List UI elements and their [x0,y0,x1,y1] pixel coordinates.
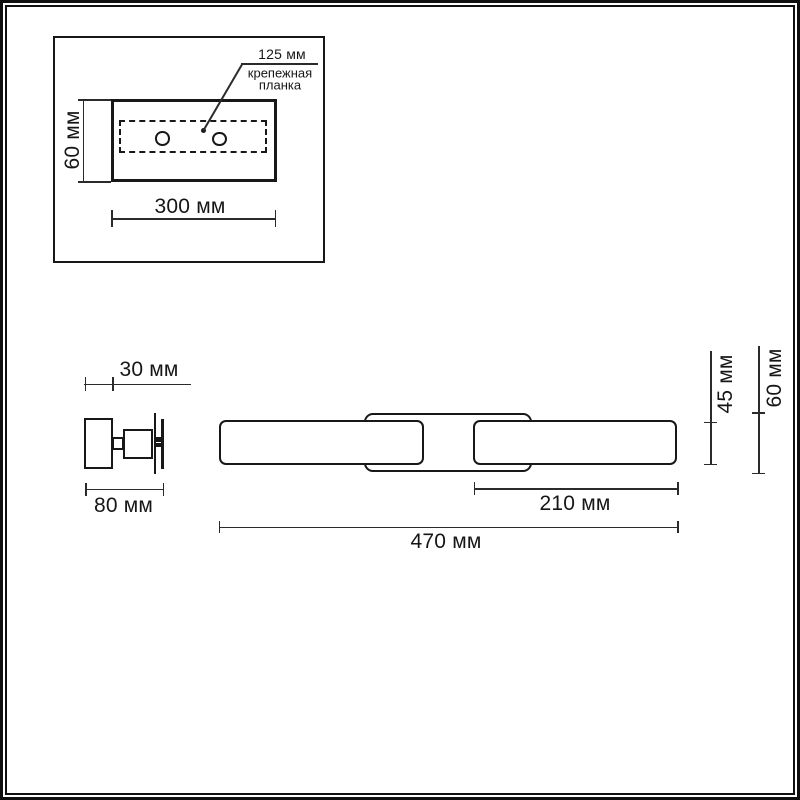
bar-height-label: 45 мм [714,354,738,413]
bar-height-dim-line [710,351,712,464]
bar-height-tick-bottom [704,464,717,466]
plate-height-dim-line [758,346,760,473]
right-shade-bar [473,420,677,465]
depth-tick-right [112,377,114,391]
dimension-drawing-canvas: 125 мм крепежная планка 60 мм 300 мм 30 … [0,0,800,800]
depth-tick-left [85,377,87,391]
total-width-dim-line [219,527,678,529]
section-dim-line [474,488,678,490]
mount-clip-lower [156,443,161,448]
mounting-hole-right [212,132,227,147]
mounting-hole-left [155,131,170,146]
depth-label: 30 мм [119,358,178,382]
section-tick-left [474,482,476,495]
inset-height-label: 60 мм [61,110,85,169]
arm-connector [112,437,124,451]
plate-height-label: 60 мм [763,348,787,407]
mounting-strip-callout: крепежная планка [248,68,312,91]
left-shade-bar [219,420,424,465]
section-label: 210 мм [540,492,611,516]
arm-block [123,429,153,459]
section-tick-right [677,482,679,495]
mounting-strip-dashed-outline [119,120,267,154]
side-width-dim-line [85,489,164,491]
side-width-tick-left [85,483,87,496]
hole-spacing-label: 125 мм [258,46,306,62]
lamp-head-side [84,418,113,469]
plate-height-tick-bottom [752,473,765,475]
callout-text-line2: планка [248,79,312,91]
depth-dim-line [84,384,191,386]
side-width-tick-right [163,483,165,496]
callout-underline [241,63,318,65]
mount-clip-upper [156,437,161,442]
side-width-label: 80 мм [94,494,153,518]
wall-plate-edge [161,419,164,469]
plate-height-tick-top [752,412,765,414]
total-width-tick-left [219,521,221,533]
inset-width-label: 300 мм [155,195,226,219]
total-width-label: 470 мм [411,530,482,554]
bar-height-tick-top [704,422,717,424]
total-width-tick-right [677,521,679,533]
